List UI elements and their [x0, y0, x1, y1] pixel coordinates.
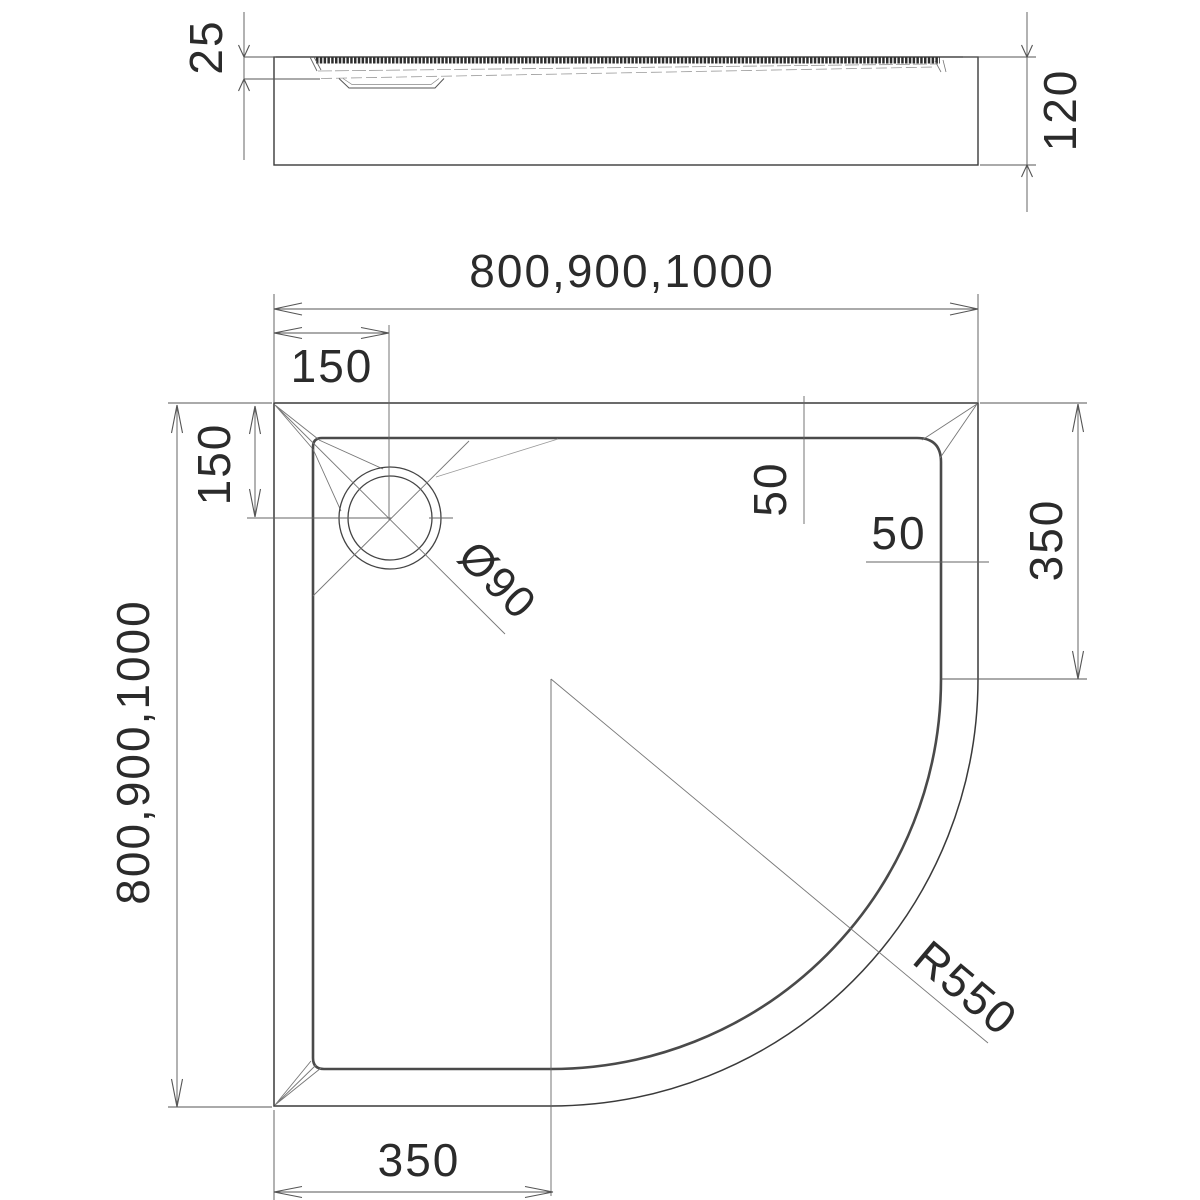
dim-overall-width-lines [274, 294, 978, 402]
dim-label-drain-offset-horizontal: 150 [291, 339, 374, 393]
drawing-linework [0, 0, 1200, 1200]
plan-view [168, 294, 1087, 1200]
dim-label-tray-depth: 25 [179, 19, 233, 74]
dim-label-overall-depth: 800,900,1000 [106, 599, 160, 904]
dim-120-lines [963, 12, 1036, 212]
technical-drawing-canvas: 25 120 800,900,1000 150 150 800,900,1000… [0, 0, 1200, 1200]
dim-label-rim-width-right: 50 [871, 506, 926, 560]
dim-drain-offset-v-lines [250, 406, 261, 517]
dim-drain-offset-h-lines [274, 328, 389, 339]
dim-label-straight-edge-bottom: 350 [378, 1133, 461, 1187]
dim-label-drain-offset-vertical: 150 [187, 423, 241, 506]
dim-label-straight-edge-right: 350 [1019, 499, 1073, 582]
side-profile-view [239, 12, 1037, 212]
dim-label-overall-width: 800,900,1000 [469, 244, 774, 298]
dim-label-tray-height: 120 [1033, 69, 1087, 152]
dim-label-rim-width-top: 50 [743, 461, 797, 516]
dim-25-lines [239, 12, 321, 160]
